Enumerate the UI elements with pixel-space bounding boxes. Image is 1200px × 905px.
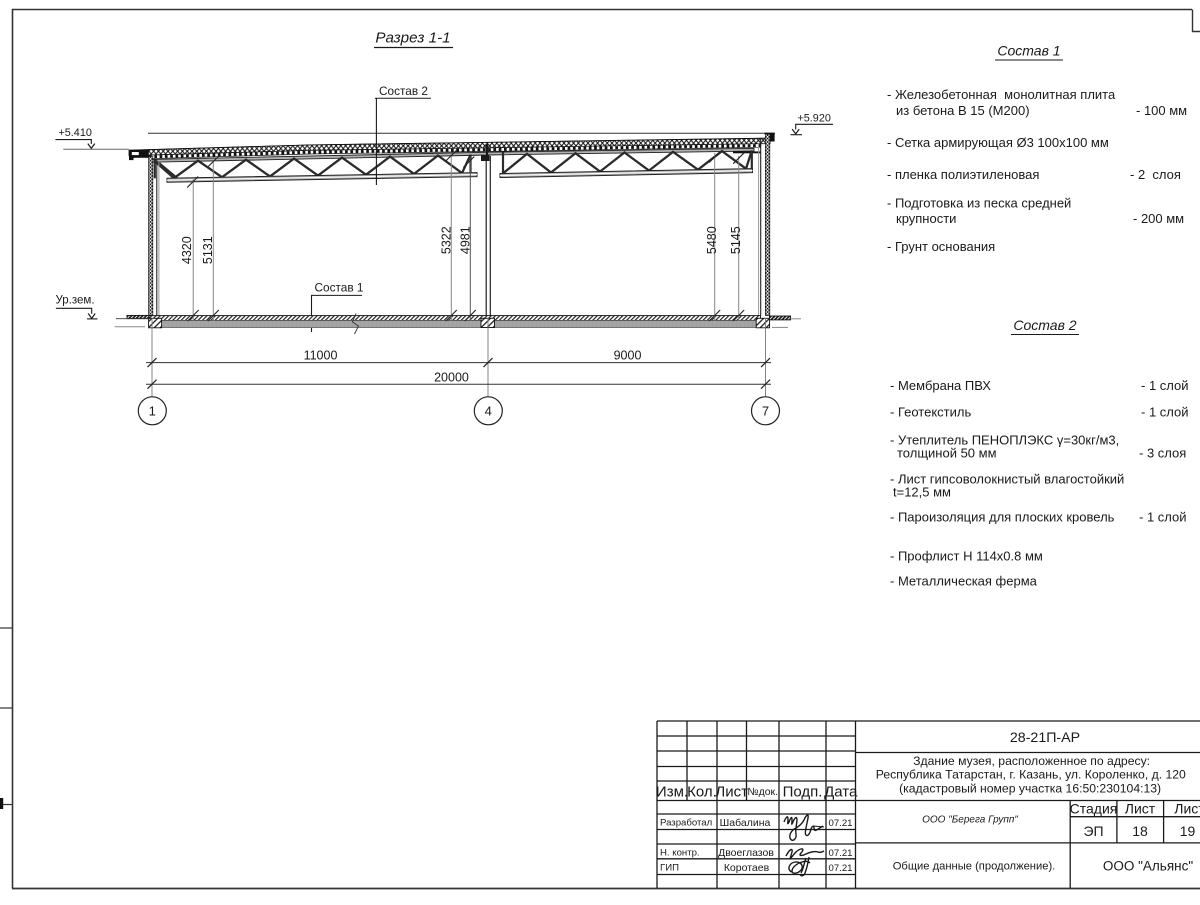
- svg-text:Состав 2: Состав 2: [379, 84, 428, 98]
- svg-text:Лист: Лист: [1125, 801, 1156, 817]
- svg-text:Общие данные (продолжение).: Общие данные (продолжение).: [893, 861, 1056, 873]
- svg-text:крупности: крупности: [896, 211, 956, 226]
- svg-text:+5.920: +5.920: [798, 113, 831, 125]
- svg-text:5480: 5480: [705, 226, 719, 254]
- svg-text:толщиной 50 мм: толщиной 50 мм: [897, 446, 997, 461]
- svg-text:28-21П-АР: 28-21П-АР: [1010, 730, 1080, 746]
- svg-text:- 1 слой: - 1 слой: [1141, 378, 1189, 393]
- svg-text:- 200 мм: - 200 мм: [1133, 211, 1184, 226]
- svg-text:ЭП: ЭП: [1083, 823, 1103, 839]
- svg-text:18: 18: [1132, 823, 1148, 839]
- svg-text:ООО "Берега Групп": ООО "Берега Групп": [922, 815, 1018, 826]
- svg-text:- Сетка армирующая Ø3 100х100: - Сетка армирующая Ø3 100х100 мм: [887, 135, 1109, 150]
- svg-text:Здание музея, расположенное по: Здание музея, расположенное по адресу:: [913, 754, 1150, 768]
- svg-text:- Железобетонная монолитная п: - Железобетонная монолитная плита: [887, 87, 1116, 102]
- svg-text:Стадия: Стадия: [1070, 801, 1118, 817]
- svg-text:- Пароизоляция для плоских кро: - Пароизоляция для плоских кровель: [890, 510, 1115, 525]
- svg-text:- Грунт основания: - Грунт основания: [887, 239, 995, 254]
- svg-text:Разрез 1-1: Разрез 1-1: [375, 30, 450, 47]
- svg-text:- 3 слоя: - 3 слоя: [1139, 446, 1186, 461]
- svg-text:Двоеглазов: Двоеглазов: [718, 847, 774, 859]
- svg-text:07.21: 07.21: [828, 848, 852, 859]
- svg-text:4981: 4981: [459, 226, 473, 254]
- svg-text:t=12,5 мм: t=12,5 мм: [893, 485, 951, 500]
- svg-text:07.21: 07.21: [828, 863, 852, 874]
- svg-text:Состав 2: Состав 2: [1013, 317, 1076, 333]
- svg-text:5322: 5322: [440, 226, 454, 254]
- svg-text:4320: 4320: [180, 236, 194, 264]
- svg-text:Дата: Дата: [824, 784, 858, 801]
- svg-text:ГИП: ГИП: [660, 863, 679, 874]
- svg-text:Состав 1: Состав 1: [315, 281, 364, 295]
- svg-text:№док.: №док.: [747, 786, 778, 798]
- svg-text:+5.410: +5.410: [59, 127, 92, 139]
- svg-text:Н. контр.: Н. контр.: [660, 848, 700, 859]
- svg-text:20000: 20000: [434, 370, 469, 384]
- svg-text:7: 7: [762, 403, 769, 418]
- svg-text:- Подготовка из песка средней: - Подготовка из песка средней: [887, 196, 1071, 211]
- svg-text:19: 19: [1180, 823, 1196, 839]
- svg-text:из бетона В 15 (М200): из бетона В 15 (М200): [896, 103, 1030, 118]
- svg-text:11000: 11000: [304, 349, 338, 363]
- svg-text:- 1 слой: - 1 слой: [1139, 510, 1187, 525]
- svg-text:4: 4: [485, 403, 492, 418]
- svg-text:Кол.: Кол.: [687, 784, 717, 801]
- svg-text:Коротаев: Коротаев: [724, 862, 770, 874]
- svg-text:1: 1: [149, 403, 156, 418]
- svg-text:Республика Татарстан, г. Казан: Республика Татарстан, г. Казань, ул. Кор…: [876, 768, 1186, 782]
- svg-text:Шабалина: Шабалина: [720, 817, 771, 829]
- svg-text:- 100 мм: - 100 мм: [1136, 103, 1187, 118]
- svg-text:5145: 5145: [729, 226, 743, 254]
- svg-text:Ур.зем.: Ур.зем.: [56, 295, 95, 307]
- svg-text:ООО "Альянс": ООО "Альянс": [1103, 859, 1193, 874]
- svg-text:5131: 5131: [201, 236, 215, 264]
- svg-text:Листов: Листов: [1174, 801, 1200, 817]
- svg-text:- 2 слоя: - 2 слоя: [1130, 167, 1181, 182]
- svg-text:Изм.: Изм.: [656, 784, 688, 801]
- svg-text:Подп.: Подп.: [783, 784, 823, 801]
- svg-text:Состав 1: Состав 1: [997, 43, 1060, 59]
- svg-text:9000: 9000: [614, 349, 642, 363]
- svg-text:- Мембрана ПВХ: - Мембрана ПВХ: [890, 378, 991, 393]
- svg-text:- Профлист Н 114х0.8 мм: - Профлист Н 114х0.8 мм: [890, 549, 1043, 564]
- svg-text:- Металлическая ферма: - Металлическая ферма: [890, 574, 1038, 589]
- svg-text:- Геотекстиль: - Геотекстиль: [890, 405, 971, 420]
- svg-text:- 1 слой: - 1 слой: [1141, 405, 1189, 420]
- svg-text:- пленка полиэтиленовая: - пленка полиэтиленовая: [887, 167, 1039, 182]
- svg-text:Лист: Лист: [715, 784, 748, 801]
- svg-text:(кадастровый номер участка 16:: (кадастровый номер участка 16:50:230104:…: [899, 782, 1161, 796]
- svg-text:07.21: 07.21: [828, 818, 852, 829]
- svg-text:Разработал: Разработал: [660, 818, 712, 829]
